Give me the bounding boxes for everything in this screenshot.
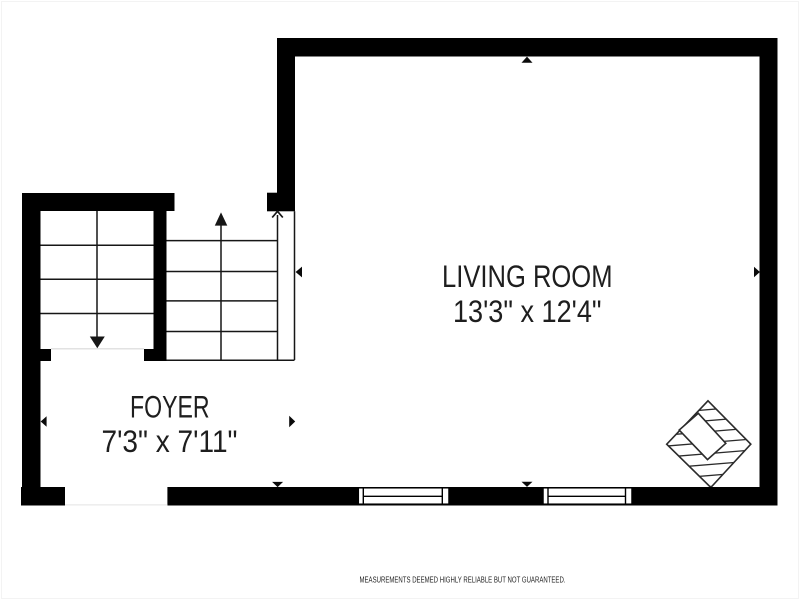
svg-text:MEASUREMENTS DEEMED HIGHLY REL: MEASUREMENTS DEEMED HIGHLY RELIABLE BUT … (360, 576, 566, 585)
svg-text:LIVING ROOM: LIVING ROOM (442, 258, 613, 294)
svg-text:FOYER: FOYER (130, 389, 210, 425)
svg-text:7'3" x 7'11": 7'3" x 7'11" (102, 423, 238, 459)
svg-text:13'3" x 12'4": 13'3" x 12'4" (453, 293, 602, 329)
